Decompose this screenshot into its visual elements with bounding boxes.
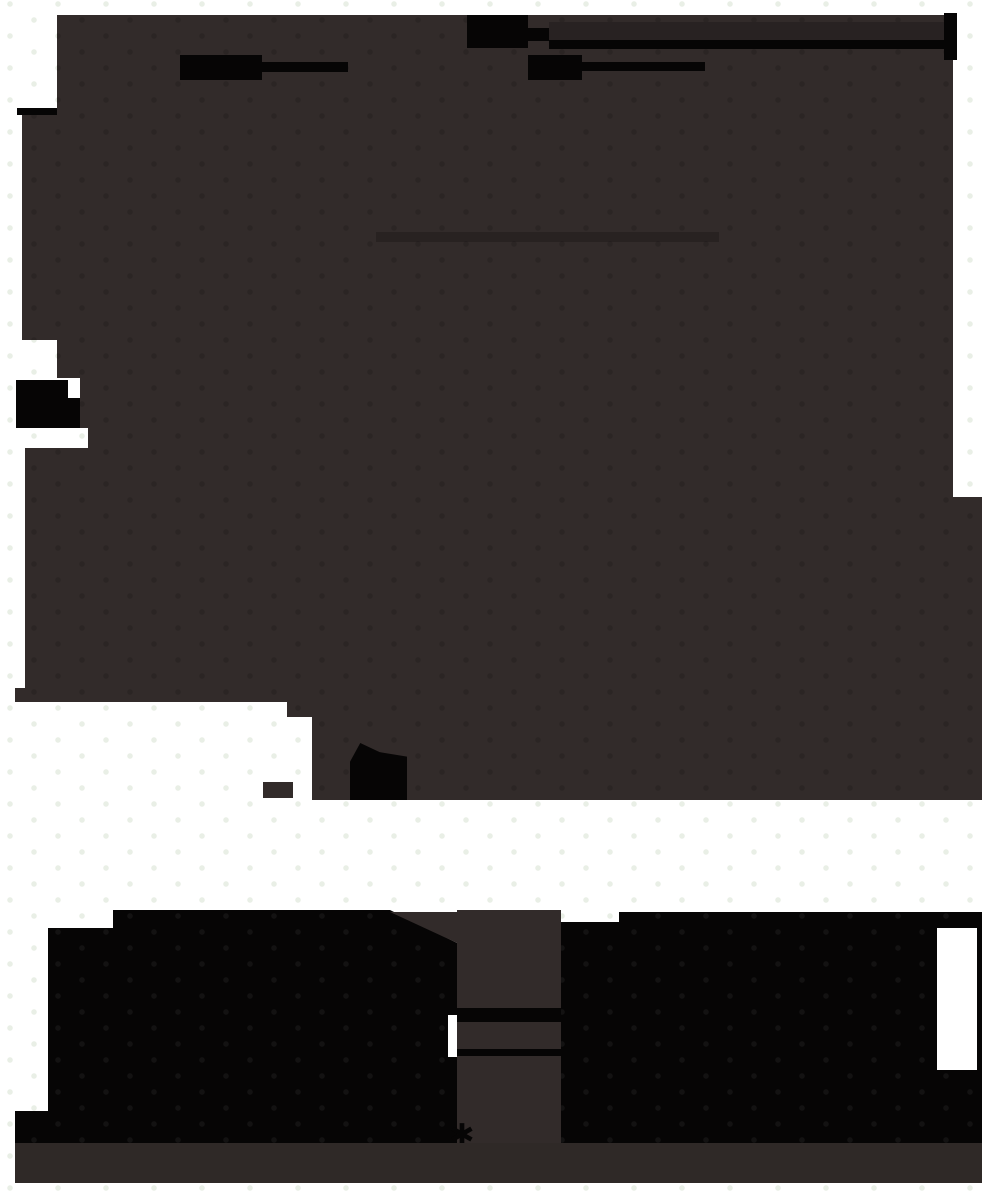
label-block-left xyxy=(180,55,262,80)
top-bar-upper-strip xyxy=(549,22,944,40)
bottom-center-strip xyxy=(457,910,561,1143)
screenshot-canvas: ✱ xyxy=(0,0,982,1196)
left-edge-tick xyxy=(17,108,57,115)
strip-divider-lower xyxy=(457,1049,561,1056)
small-dark-bar xyxy=(263,782,293,798)
left-bottom-notch xyxy=(15,688,25,702)
top-center-blob xyxy=(467,15,528,48)
label-block-right xyxy=(528,55,582,80)
inner-shaded-band xyxy=(376,232,719,242)
strip-divider-upper xyxy=(457,1008,561,1022)
label-bar-right xyxy=(582,62,705,71)
bottom-band xyxy=(15,1143,982,1183)
left-panel-nick xyxy=(448,1015,457,1057)
top-center-blob-tail xyxy=(528,28,549,41)
top-right-vertical-bar xyxy=(944,13,957,60)
top-bar-underline xyxy=(549,40,944,49)
right-panel-notch xyxy=(937,928,977,1070)
label-bar-left xyxy=(262,62,348,72)
left-edge-blob-step xyxy=(40,398,80,428)
